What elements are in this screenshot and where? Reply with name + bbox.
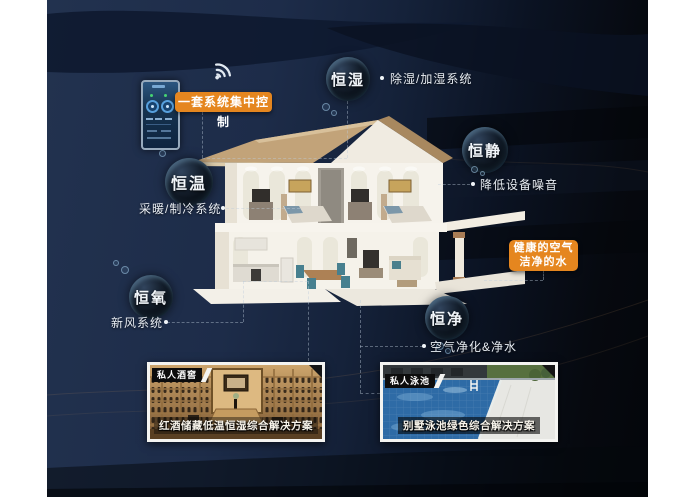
connector-line <box>243 281 308 282</box>
mini-bubble <box>159 150 166 157</box>
connector-line <box>360 393 380 394</box>
connector-line <box>347 101 348 158</box>
phone-row <box>147 137 171 139</box>
note-purification: 空气净化&净水 <box>430 338 517 355</box>
tag-label: 私人酒窖 <box>157 370 197 380</box>
note-dot <box>380 76 384 80</box>
healthy-air-callout: 健康的空气 洁净的水 <box>509 240 578 271</box>
mini-bubble <box>331 110 337 116</box>
bubble-constant-oxygen: 恒氧 <box>129 275 173 319</box>
tag-label: 私人泳池 <box>390 376 430 386</box>
note-dot <box>164 320 168 324</box>
bubble-constant-clean: 恒净 <box>425 296 469 340</box>
note-dehumidify: 除湿/加湿系统 <box>390 70 472 87</box>
bubble-constant-temperature: 恒温 <box>165 158 213 206</box>
note-dot <box>471 182 475 186</box>
phone-row <box>161 130 171 132</box>
mini-bubble <box>121 266 129 274</box>
humidity-dial <box>161 100 174 113</box>
wine-cellar-caption: 红酒储藏低温恒湿综合解决方案 <box>154 417 318 434</box>
mini-bubble <box>322 103 330 111</box>
pool-caption: 别墅泳池绿色综合解决方案 <box>398 417 540 434</box>
connector-line <box>167 322 243 323</box>
phone-label <box>146 118 153 120</box>
connector-line <box>484 280 543 281</box>
connector-line <box>438 184 470 185</box>
smart-panel-phone <box>141 80 180 150</box>
note-noise: 降低设备噪音 <box>480 176 558 193</box>
temperature-dial <box>146 100 159 113</box>
phone-row <box>147 130 157 132</box>
content-area: 一套系统集中控制 恒湿 除湿/加湿系统 恒静 降低设备噪音 恒温 采暖/制冷系统… <box>47 0 648 497</box>
connector-line <box>543 270 544 280</box>
tag-wine-cellar: 私人酒窖 <box>152 368 202 382</box>
connector-line <box>221 208 300 209</box>
connector-line <box>202 112 203 158</box>
status-led <box>164 94 167 97</box>
healthy-air-line2: 洁净的水 <box>509 255 578 269</box>
phone-label <box>165 118 172 120</box>
connector-line <box>360 346 423 347</box>
connector-line <box>308 281 309 361</box>
note-heating: 采暖/制冷系统 <box>139 200 221 217</box>
bubble-constant-quiet: 恒静 <box>462 127 508 173</box>
mini-bubble <box>113 260 119 266</box>
healthy-air-line1: 健康的空气 <box>509 241 578 255</box>
corner-ribbon <box>542 365 555 378</box>
note-fresh-air: 新风系统 <box>111 314 163 331</box>
corner-ribbon <box>309 365 322 378</box>
tag-pool: 私人泳池 <box>385 374 435 388</box>
note-dot <box>422 344 426 348</box>
connector-line <box>202 158 347 159</box>
central-control-callout: 一套系统集中控制 <box>175 92 272 112</box>
infographic-smart-home: 一套系统集中控制 恒湿 除湿/加湿系统 恒静 降低设备噪音 恒温 采暖/制冷系统… <box>0 0 700 497</box>
bubble-constant-humidity: 恒湿 <box>326 57 370 101</box>
wine-cellar-card: 私人酒窖 红酒储藏低温恒湿综合解决方案 <box>147 362 325 442</box>
status-led <box>150 94 153 97</box>
pool-card: 私人泳池 别墅泳池绿色综合解决方案 <box>380 362 558 442</box>
mini-bubble <box>471 166 478 173</box>
phone-divider <box>146 124 171 125</box>
connector-line <box>243 281 244 322</box>
note-dot <box>221 206 225 210</box>
phone-label <box>155 118 162 120</box>
phone-screen-header <box>152 85 165 88</box>
